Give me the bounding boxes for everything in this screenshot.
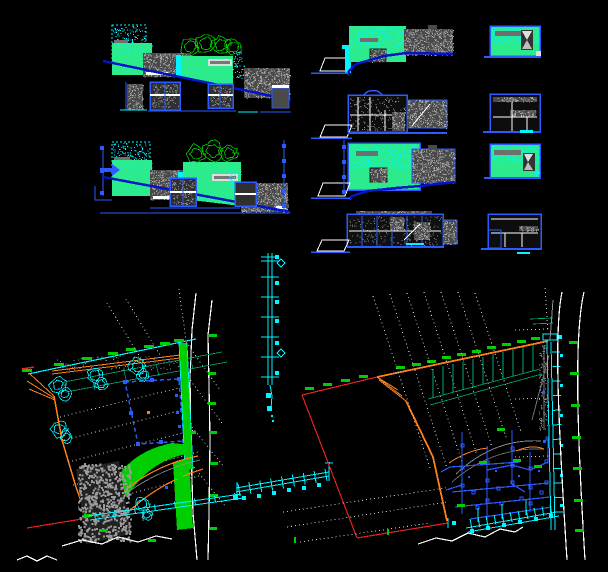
section-a3-speck-6-dot: [417, 164, 418, 165]
elevation-front-lower-speck-10-dot: [156, 180, 157, 181]
section-a2-speck-10-dot: [413, 105, 414, 106]
section-a2-speck-10-dot: [424, 104, 425, 105]
elevation-front-upper-speck-25-dot: [163, 86, 164, 87]
elevation-front-upper-speck-1-dot: [130, 33, 131, 34]
section-a3-speck-6-dot: [421, 164, 422, 165]
elevation-front-lower-speck-25-dot: [181, 190, 182, 191]
section-a1-speck-4-dot: [372, 32, 373, 33]
section-a3-speck-1-dot: [385, 156, 386, 157]
elevation-front-upper-speck-6-dot: [168, 54, 169, 55]
section-a2-speck-10-dot: [441, 113, 442, 114]
section-a2-speck-10-dot: [440, 123, 441, 124]
section-a3-speck-4-dot: [385, 170, 386, 171]
elevation-front-lower-speck-3-dot: [148, 154, 149, 155]
section-a2-speck-8-dot: [397, 126, 398, 127]
elevation-front-upper-speck-22-dot: [142, 89, 143, 90]
elevation-front-lower-speck-21-dot: [261, 189, 262, 190]
elevation-front-lower-speck-3-dot: [128, 152, 129, 153]
section-a3-speck-6-dot: [420, 168, 421, 169]
elevation-front-lower-speck-21-dot: [269, 202, 270, 203]
section-a1-speck-9-dot: [444, 41, 445, 42]
elevation-front-upper-tree-13-canopy: [227, 43, 239, 52]
elevation-front-upper-speck-22-dot: [128, 104, 129, 105]
section-a3-speck-6-dot: [430, 163, 431, 164]
section-a3-speck-1-dot: [377, 145, 378, 146]
elevation-front-lower-speck-21-dot: [273, 184, 274, 185]
elevation-front-upper-speck-6-dot: [155, 66, 156, 67]
elevation-front-lower-speck-3-dot: [118, 146, 119, 147]
elevation-front-lower-speck-10-dot: [156, 184, 157, 185]
elevation-front-upper-speck-18-dot: [264, 69, 265, 70]
elevation-front-upper-speck-16-dot: [235, 64, 236, 65]
section-a3-speck-1-dot: [410, 156, 411, 157]
section-a1-speck-9-dot: [451, 44, 452, 45]
section-a2-speck-10-dot: [408, 110, 409, 111]
elevation-front-upper-speck-18-dot: [286, 79, 287, 80]
elevation-front-upper-speck-18-dot: [250, 77, 251, 78]
elevation-front-lower-speck-19-dot: [231, 175, 232, 176]
section-a4-speck-1-dot: [372, 212, 373, 213]
elevation-front-lower-speck-10-dot: [164, 171, 165, 172]
elevation-front-upper-speck-25-dot: [173, 89, 174, 90]
section-a3-speck-6-dot: [454, 157, 455, 158]
elevation-front-upper-speck-18-dot: [263, 96, 264, 97]
section-a1-speck-4-dot: [402, 47, 403, 48]
section-a3-speck-6-dot: [441, 159, 442, 160]
elevation-front-upper-speck-6-dot: [168, 72, 169, 73]
section-a2-speck-10-dot: [430, 125, 431, 126]
section-a1-speck-9-dot: [407, 29, 408, 30]
section-a3-speck-1-dot: [398, 158, 399, 159]
section-a1-speck-9-dot: [407, 40, 408, 41]
section-a2-speck-2-dot: [367, 129, 368, 130]
elevation-front-upper-speck-16-dot: [244, 66, 245, 67]
section-a1-speck-9-dot: [446, 40, 447, 41]
elevation-front-lower-speck-10-dot: [166, 192, 167, 193]
elevation-front-lower-speck-21-dot: [278, 188, 279, 189]
section-a3-speck-6-dot: [437, 163, 438, 164]
section-a2-speck-10-dot: [410, 117, 411, 118]
elevation-front-upper-speck-16-dot: [235, 72, 236, 73]
elevation-front-upper-speck-18-dot: [262, 86, 263, 87]
section-a2-speck-2-dot: [376, 104, 377, 105]
elevation-front-upper-speck-6-dot: [173, 65, 174, 66]
elevation-front-upper-speck-29-dot: [218, 96, 219, 97]
section-a1-speck-4-dot: [392, 31, 393, 32]
section-a3-speck-6-dot: [439, 150, 440, 151]
elevation-front-lower-speck-21-dot: [276, 197, 277, 198]
elevation-front-upper-speck-29-dot: [213, 105, 214, 106]
section-a4-speck-1-dot: [412, 211, 413, 212]
elevation-front-upper-speck-18-dot: [265, 84, 266, 85]
section-a2-speck-10-dot: [424, 115, 425, 116]
section-a1-speck-4-dot: [393, 42, 394, 43]
section-a3-speck-1-dot: [385, 149, 386, 150]
section-a1-speck-4-dot: [364, 45, 365, 46]
section-a1-speck-9-dot: [426, 40, 427, 41]
elevation-front-lower-speck-25-dot: [175, 183, 176, 184]
elevation-front-upper-speck-6-dot: [149, 59, 150, 60]
section-a3-speck-6-dot: [420, 160, 421, 161]
elevation-front-upper-speck-1-dot: [113, 31, 114, 32]
section-a3-speck-6-dot: [443, 163, 444, 164]
elevation-front-upper-speck-18-dot: [249, 73, 250, 74]
section-a2-speck-10-dot: [429, 124, 430, 125]
elevation-front-lower-speck-10-dot: [150, 182, 151, 183]
elevation-front-lower-speck-10-dot: [177, 170, 178, 171]
section-a2-speck-10-dot: [439, 104, 440, 105]
section-a3-speck-1-dot: [351, 155, 352, 156]
section-a1-speck-9-dot: [425, 36, 426, 37]
elevation-front-upper-speck-25-dot: [162, 101, 163, 102]
elevation-front-upper-speck-18-dot: [260, 80, 261, 81]
elevation-front-upper-speck-25-dot: [166, 106, 167, 107]
elevation-front-upper-speck-6-dot: [150, 59, 151, 60]
section-a2-speck-10-dot: [445, 114, 446, 115]
section-a3-speck-1-dot: [410, 157, 411, 158]
elevation-front-lower-speck-21-dot: [277, 198, 278, 199]
elevation-front-upper-speck-18-dot: [253, 82, 254, 83]
section-a3-speck-6-dot: [454, 155, 455, 156]
section-a3-speck-6-dot: [448, 163, 449, 164]
elevation-front-lower-speck-21-dot: [285, 185, 286, 186]
section-a1-speck-4-dot: [355, 31, 356, 32]
section-a2-speck-10-dot: [436, 109, 437, 110]
elevation-front-upper-speck-6-dot: [164, 54, 165, 55]
elevation-front-upper-speck-1-dot: [133, 34, 134, 35]
section-a2-speck-2-dot: [373, 100, 374, 101]
section-a2-speck-8-dot: [396, 124, 397, 125]
elevation-front-lower-speck-3-dot: [131, 148, 132, 149]
section-a3-speck-6-dot: [444, 157, 445, 158]
section-a2-speck-2-dot: [378, 109, 379, 110]
elevation-front-upper-speck-16-dot: [236, 67, 237, 68]
elevation-front-lower-speck-3-dot: [134, 147, 135, 148]
section-a1-speck-9-dot: [410, 44, 411, 45]
section-a2-speck-2-dot: [369, 110, 370, 111]
elevation-front-upper-speck-22-dot: [132, 90, 133, 91]
section-a3-speck-6-dot: [420, 157, 421, 158]
elevation-front-lower-speck-21-dot: [287, 197, 288, 198]
section-a1-speck-9-dot: [435, 34, 436, 35]
elevation-front-upper-speck-25-dot: [167, 104, 168, 105]
section-a3-speck-6-dot: [413, 175, 414, 176]
section-a3-speck-6-dot: [429, 154, 430, 155]
section-a1-speck-9-dot: [405, 43, 406, 44]
elevation-front-upper-speck-6-dot: [156, 53, 157, 54]
section-a1-speck-9-dot: [432, 49, 433, 50]
section-a3-speck-6-dot: [427, 171, 428, 172]
section-a2-speck-10-dot: [408, 102, 409, 103]
section-a1-speck-9-dot: [422, 34, 423, 35]
elevation-front-lower-speck-3-dot: [145, 159, 146, 160]
section-a1-speck-7-dot: [381, 58, 382, 59]
elevation-front-lower-speck-10-dot: [157, 185, 158, 186]
elevation-front-lower-speck-10-dot: [160, 173, 161, 174]
elevation-front-upper-speck-16-dot: [241, 69, 242, 70]
section-a1-speck-4-dot: [367, 27, 368, 28]
elevation-front-lower-tree-15-canopy: [206, 145, 220, 158]
section-a2-speck-2-dot: [355, 126, 356, 127]
elevation-front-upper-speck-4-dot: [133, 51, 134, 52]
section-a2-speck-10-dot: [446, 128, 447, 129]
elevation-front-lower-tree-14-canopy: [190, 148, 203, 159]
section-a1-speck-4-dot: [351, 46, 352, 47]
section-a3-speck-1-dot: [385, 145, 386, 146]
elevation-front-lower-speck-3-dot: [135, 154, 136, 155]
section-a3-speck-6-dot: [413, 166, 414, 167]
elevation-front-upper-speck-18-dot: [246, 80, 247, 81]
elevation-front-lower-speck-10-dot: [175, 171, 176, 172]
section-a3-speck-6-dot: [438, 172, 439, 173]
elevation-front-lower-speck-21-dot: [267, 190, 268, 191]
elevation-front-upper-speck-22-dot: [136, 106, 137, 107]
section-a3-speck-6-dot: [446, 164, 447, 165]
elevation-front-lower-sqs-1-sq: [100, 146, 104, 150]
section-a1-speck-9-dot: [432, 46, 433, 47]
section-a2-speck-10-dot: [424, 105, 425, 106]
elevation-front-lower-speck-21-dot: [272, 188, 273, 189]
section-a3-speck-6-dot: [445, 155, 446, 156]
elevation-front-upper-speck-25-dot: [153, 103, 154, 104]
section-a2-speck-2-dot: [361, 100, 362, 101]
section-a3-speck-4-dot: [385, 181, 386, 182]
elevation-front-lower-speck-10-dot: [150, 172, 151, 173]
section-a3-speck-1-dot: [415, 146, 416, 147]
elevation-front-upper-speck-18-dot: [261, 81, 262, 82]
elevation-front-upper-speck-18-dot: [264, 88, 265, 89]
elevation-front-lower-speck-21-dot: [266, 187, 267, 188]
elevation-front-upper-speck-18-dot: [281, 78, 282, 79]
elevation-front-lower-speck-21-dot: [246, 211, 247, 212]
elevation-front-lower-speck-21-dot: [261, 192, 262, 193]
elevation-front-upper-speck-1-dot: [119, 29, 120, 30]
section-a1-speck-9-dot: [436, 31, 437, 32]
section-a3-speck-6-dot: [434, 151, 435, 152]
section-a3-speck-6-dot: [442, 165, 443, 166]
section-a2-speck-10-dot: [434, 104, 435, 105]
section-a3-speck-1-dot: [388, 154, 389, 155]
elevation-front-upper-speck-18-dot: [263, 81, 264, 82]
section-a2-speck-10-dot: [422, 100, 423, 101]
elevation-front-upper-speck-16-dot: [239, 72, 240, 73]
elevation-front-lower-speck-25-dot: [181, 202, 182, 203]
section-a2-speck-10-dot: [441, 124, 442, 125]
elevation-front-upper-speck-6-dot: [156, 68, 157, 69]
section-a3-speck-1-dot: [409, 156, 410, 157]
elevation-front-lower-speck-3-dot: [123, 153, 124, 154]
section-a2-speck-8-dot: [399, 122, 400, 123]
section-a3-speck-1-dot: [370, 163, 371, 164]
section-a3-speck-6-dot: [438, 168, 439, 169]
section-a1-speck-9-dot: [421, 49, 422, 50]
section-a1-speck-4-dot: [374, 48, 375, 49]
elevation-front-upper-speck-18-dot: [256, 89, 257, 90]
elevation-front-lower-speck-3-dot: [124, 146, 125, 147]
elevation-front-upper-speck-22-dot: [140, 84, 141, 85]
elevation-front-lower-speck-10-dot: [162, 180, 163, 181]
elevation-front-upper-speck-6-dot: [153, 60, 154, 61]
elevation-front-upper-speck-22-dot: [133, 87, 134, 88]
cyan-column: [176, 55, 181, 77]
elevation-front-lower-speck-25-dot: [176, 189, 177, 190]
elevation-front-upper-speck-25-dot: [160, 87, 161, 88]
section-a4-speck-1-dot: [400, 211, 401, 212]
elevation-front-upper-speck-25-dot: [159, 106, 160, 107]
section-a2-speck-2-dot: [353, 123, 354, 124]
elevation-front-upper-speck-18-dot: [266, 98, 267, 99]
section-a1-speck-9-dot: [405, 45, 406, 46]
elevation-front-lower-rect-5: [112, 160, 152, 196]
section-a2-speck-10-dot: [435, 106, 436, 107]
section-a3-speck-6-dot: [452, 172, 453, 173]
elevation-front-lower-speck-21-dot: [286, 193, 287, 194]
section-a3-speck-1-dot: [362, 163, 363, 164]
section-a2-speck-2-dot: [375, 116, 376, 117]
elevation-front-lower-speck-10-dot: [166, 183, 167, 184]
elevation-front-lower-speck-21-dot: [277, 203, 278, 204]
elevation-front-lower-speck-25-dot: [194, 202, 195, 203]
elevation-front-lower-speck-10-dot: [168, 179, 169, 180]
section-a3-speck-1-dot: [376, 149, 377, 150]
elevation-front-lower-speck-3-dot: [115, 151, 116, 152]
elevation-front-upper-speck-6-dot: [181, 53, 182, 54]
section-a2-speck-8-dot: [400, 125, 401, 126]
section-a2-speck-2-dot: [365, 103, 366, 104]
section-a1-speck-9-dot: [408, 42, 409, 43]
section-a2-speck-10-dot: [420, 126, 421, 127]
elevation-front-upper-speck-18-dot: [266, 76, 267, 77]
elevation-front-lower-speck-25-dot: [186, 184, 187, 185]
elevation-front-upper-speck-18-dot: [288, 80, 289, 81]
section-a3-speck-1-dot: [396, 149, 397, 150]
section-a3-speck-1-dot: [397, 159, 398, 160]
section-a1-speck-9-dot: [441, 45, 442, 46]
elevation-front-upper-speck-4-dot: [152, 45, 153, 46]
section-a3-speck-1-dot: [370, 148, 371, 149]
elevation-front-lower-speck-21-dot: [286, 202, 287, 203]
elevation-front-upper-speck-6-dot: [150, 55, 151, 56]
section-a1-speck-9-dot: [453, 46, 454, 47]
section-a1-speck-9-dot: [421, 32, 422, 33]
section-a1-speck-7-dot: [370, 55, 371, 56]
section-a2-speck-8-dot: [400, 113, 401, 114]
elevation-front-upper-speck-18-dot: [257, 83, 258, 84]
elevation-front-lower-speck-3-dot: [123, 143, 124, 144]
section-a3-speck-6-dot: [416, 157, 417, 158]
elevation-front-upper-speck-22-dot: [137, 104, 138, 105]
elevation-front-upper-speck-1-dot: [126, 38, 127, 39]
section-a3-speck-1-dot: [359, 162, 360, 163]
elevation-front-upper-speck-18-dot: [261, 70, 262, 71]
elevation-front-lower-speck-3-dot: [116, 156, 117, 157]
elevation-front-lower-speck-21-dot: [287, 187, 288, 188]
section-a1-speck-9-dot: [441, 34, 442, 35]
elevation-front-upper-speck-22-dot: [141, 88, 142, 89]
section-a1-speck-9-dot: [414, 33, 415, 34]
elevation-front-lower-speck-21-dot: [270, 186, 271, 187]
section-a1-speck-9-dot: [415, 39, 416, 40]
section-a1-speck-4-dot: [401, 31, 402, 32]
section-a1-speck-9-dot: [447, 32, 448, 33]
elevation-front-lower-speck-3-dot: [136, 159, 137, 160]
section-a2-speck-2-dot: [404, 108, 405, 109]
section-a3-speck-6-dot: [426, 159, 427, 160]
section-a1-speck-9-dot: [435, 30, 436, 31]
section-a1-speck-4-dot: [395, 40, 396, 41]
elevation-front-upper-speck-1-dot: [123, 29, 124, 30]
elevation-front-lower-speck-21-dot: [266, 199, 267, 200]
elevation-front-lower-speck-10-dot: [176, 174, 177, 175]
elevation-front-upper-speck-25-dot: [170, 96, 171, 97]
section-a1-speck-4-dot: [384, 28, 385, 29]
elevation-front-upper-speck-18-dot: [287, 73, 288, 74]
elevation-front-upper-speck-1-dot: [119, 36, 120, 37]
section-a1-speck-9-dot: [452, 50, 453, 51]
section-a2-speck-2-dot: [382, 103, 383, 104]
section-a1-speck-4-dot: [379, 29, 380, 30]
section-a3-speck-1-dot: [410, 168, 411, 169]
section-a3-speck-1-dot: [403, 163, 404, 164]
section-a2-speck-10-dot: [439, 116, 440, 117]
elevation-front-upper-speck-18-dot: [252, 74, 253, 75]
elevation-front-upper-speck-18-dot: [249, 97, 250, 98]
section-a2-speck-2-dot: [380, 117, 381, 118]
section-a2-speck-10-dot: [419, 119, 420, 120]
section-a2-speck-10-dot: [424, 117, 425, 118]
elevation-front-lower-speck-19-dot: [228, 182, 229, 183]
elevation-front-upper-speck-18-dot: [288, 72, 289, 73]
section-a2-speck-8-dot: [392, 123, 393, 124]
elevation-front-upper-speck-18-dot: [249, 70, 250, 71]
elevation-front-upper-speck-25-dot: [168, 107, 169, 108]
section-a3-speck-1-dot: [398, 151, 399, 152]
elevation-front-upper-speck-25-dot: [168, 86, 169, 87]
section-a3-speck-1-dot: [414, 144, 415, 145]
elevation-front-upper-rect-15: [210, 61, 230, 64]
section-a2-speck-10-dot: [442, 128, 443, 129]
elevation-front-upper-speck-18-dot: [260, 76, 261, 77]
elevation-front-upper-speck-6-dot: [144, 54, 145, 55]
elevation-front-upper-speck-1-dot: [139, 30, 140, 31]
elevation-front-lower-speck-21-dot: [259, 192, 260, 193]
elevation-front-lower-speck-10-dot: [156, 172, 157, 173]
elevation-front-lower-speck-21-dot: [269, 211, 270, 212]
section-a1-speck-4-dot: [369, 47, 370, 48]
section-a3-speck-1-dot: [397, 145, 398, 146]
section-a1-speck-4-dot: [401, 46, 402, 47]
section-a3-speck-6-dot: [430, 172, 431, 173]
elevation-front-upper-speck-29-dot: [227, 93, 228, 94]
section-a3-speck-6-dot: [432, 180, 433, 181]
section-a3-speck-1-dot: [388, 150, 389, 151]
section-a2-speck-10-dot: [446, 116, 447, 117]
elevation-front-upper-speck-22-dot: [140, 94, 141, 95]
section-a2-speck-8-dot: [404, 121, 405, 122]
section-a2-speck-10-dot: [421, 121, 422, 122]
section-a3-sqs-12-sq: [342, 145, 346, 149]
section-a1-speck-9-dot: [451, 41, 452, 42]
elevation-front-upper-speck-22-dot: [129, 86, 130, 87]
elevation-front-upper-speck-18-dot: [287, 79, 288, 80]
section-a1-speck-7-dot: [379, 49, 380, 50]
section-a1-speck-9-dot: [435, 55, 436, 56]
elevation-front-upper-speck-6-dot: [165, 62, 166, 63]
elevation-front-upper-speck-4-dot: [128, 44, 129, 45]
elevation-front-lower-speck-19-dot: [239, 170, 240, 171]
section-a1-speck-9-dot: [429, 32, 430, 33]
section-a3-speck-6-dot: [443, 166, 444, 167]
